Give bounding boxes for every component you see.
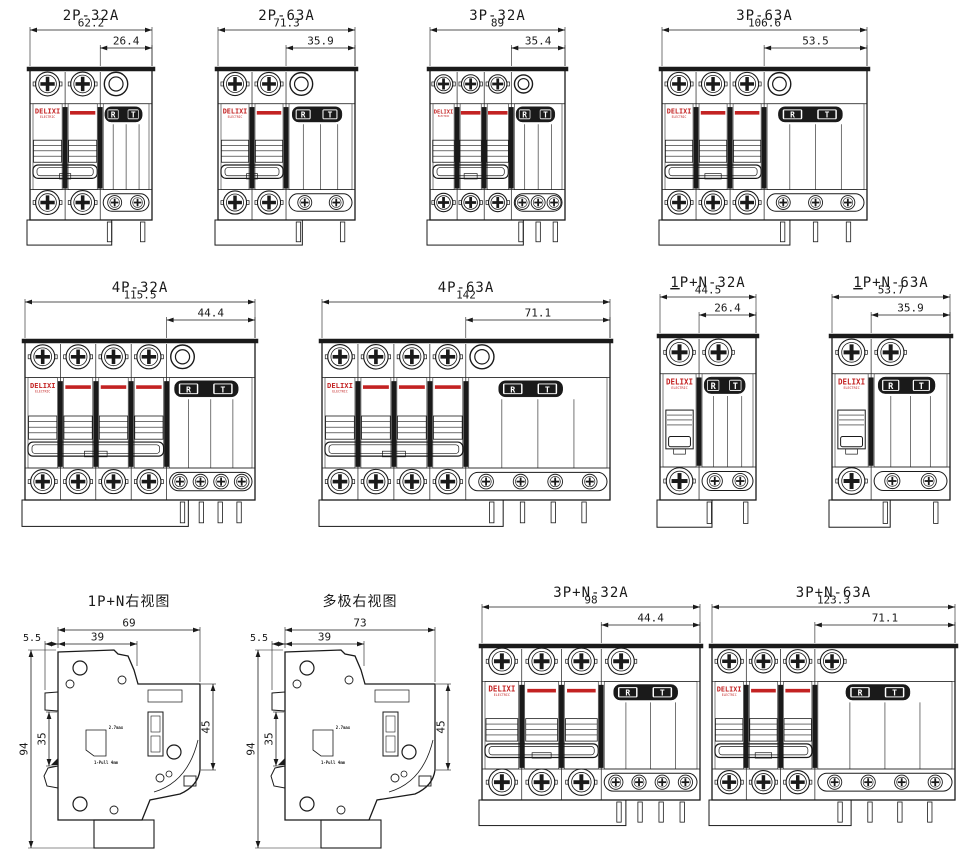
dimension-label: 106.6 — [748, 17, 781, 30]
brand-logo-sub: ELECTRIC — [722, 693, 737, 697]
reset-button-label: R — [186, 384, 191, 394]
brand-logo-sub: ELECTRIC — [494, 693, 510, 697]
diagram-1pn-32a: 1P+N-32A44.526.4DELIXIELECTRICRT — [657, 275, 759, 527]
test-button-label: T — [733, 382, 738, 392]
dimension-label: 71.3 — [273, 17, 300, 30]
dimension-label: 73 — [353, 617, 366, 630]
reset-button-label: R — [111, 111, 116, 120]
diagram-title: 1P+N右视图 — [88, 594, 171, 610]
brand-logo-sub: ELECTRIC — [671, 386, 687, 390]
test-button-label: T — [220, 384, 225, 394]
dimension-label: 53.7 — [878, 284, 905, 297]
dimension-label: 35.9 — [307, 35, 334, 48]
dimension-label: 53.5 — [802, 35, 829, 48]
test-button-label: T — [892, 689, 897, 698]
diagram-3pn-63a: 3P+N-63A123.371.1DELIXIELECTRICRT — [709, 585, 958, 826]
dimension-label: 45 — [435, 720, 448, 733]
brand-logo-sub: ELECTRIC — [40, 115, 55, 119]
dimension-label: 39 — [318, 631, 331, 644]
test-button-label: T — [825, 111, 830, 120]
reset-button-label: R — [711, 382, 717, 392]
dimension-label: 44.4 — [198, 307, 225, 320]
drawing-sheet: 2P-32A62.226.4DELIXIELECTRICRT2P-63A71.3… — [0, 0, 967, 863]
dimension-label: 26.4 — [714, 302, 741, 315]
diagram-1pn-63a: 1P+N-63A53.735.9DELIXIELECTRICRT — [829, 275, 953, 527]
dimension-label: 115.5 — [123, 289, 156, 302]
dimension-label: 39 — [91, 631, 104, 644]
dimension-label: 94 — [245, 742, 258, 756]
dimension-label: 35.4 — [525, 35, 552, 48]
dimension-label: 26.4 — [113, 35, 140, 48]
brand-logo: DELIXI — [488, 685, 515, 694]
brand-logo-sub: ELECTRIC — [843, 386, 859, 390]
diagram-3p-32a: 3P-32A8935.4DELIXIELECTRICRT — [427, 8, 568, 245]
dimension-label: 142 — [456, 289, 476, 302]
diagram-3pn-32a: 3P+N-32A9844.4DELIXIELECTRICRT — [479, 585, 703, 826]
dimension-label: 98 — [584, 594, 597, 607]
brand-logo: DELIXI — [838, 378, 865, 387]
reset-button-label: R — [790, 111, 795, 120]
diagram-2p-63a: 2P-63A71.335.9DELIXIELECTRICRT — [215, 8, 358, 245]
dimension-label: 35.9 — [897, 302, 924, 315]
diagram-side-1pn: 1P+N右视图69395.59435452.7max1-Pull 4mm — [18, 594, 217, 848]
reset-button-label: R — [888, 382, 894, 392]
dimension-label: 35 — [263, 732, 276, 745]
dimension-label: 45 — [200, 720, 213, 733]
side-note: 1-Pull 4mm — [94, 760, 119, 765]
dimension-label: 44.5 — [695, 284, 722, 297]
brand-logo-sub: ELECTRIC — [438, 115, 450, 118]
reset-button-label: R — [510, 384, 515, 394]
dimension-label: 5.5 — [23, 633, 41, 644]
dimension-label: 44.4 — [637, 612, 664, 625]
dimension-label: 62.2 — [78, 17, 105, 30]
test-button-label: T — [131, 111, 136, 120]
side-note: 2.7max — [336, 725, 351, 730]
test-button-label: T — [660, 689, 665, 698]
side-note: 2.7max — [109, 725, 124, 730]
side-note: 1-Pull 4mm — [321, 760, 346, 765]
diagram-4p-32a: 4P-32A115.544.4DELIXIELECTRICRT — [22, 280, 258, 526]
reset-button-label: R — [301, 111, 306, 120]
reset-button-label: R — [625, 689, 630, 698]
diagram-2p-32a: 2P-32A62.226.4DELIXIELECTRICRT — [27, 8, 155, 245]
brand-logo-sub: ELECTRIC — [35, 389, 50, 393]
reset-button-label: R — [858, 689, 863, 698]
brand-logo: DELIXI — [666, 378, 693, 387]
dimension-label: 123.3 — [817, 594, 850, 607]
brand-logo-sub: ELECTRIC — [228, 115, 243, 119]
dimension-label: 69 — [122, 617, 135, 630]
diagram-side-multi: 多极右视图73395.59435452.7max1-Pull 4mm — [245, 593, 452, 848]
dimension-label: 5.5 — [250, 633, 268, 644]
diagram-4p-63a: 4P-63A14271.1DELIXIELECTRICRT — [319, 280, 613, 526]
dimension-label: 89 — [491, 17, 504, 30]
brand-logo-sub: ELECTRIC — [672, 115, 687, 119]
dimension-label: 71.1 — [872, 612, 899, 625]
dimension-label: 94 — [18, 742, 31, 756]
dimension-label: 35 — [36, 732, 49, 745]
test-button-label: T — [919, 382, 924, 392]
test-button-label: T — [545, 384, 550, 394]
test-button-label: T — [543, 111, 548, 120]
drawings-canvas: 2P-32A62.226.4DELIXIELECTRICRT2P-63A71.3… — [0, 0, 967, 863]
reset-button-label: R — [522, 111, 527, 120]
dimension-label: 71.1 — [525, 307, 552, 320]
brand-logo-sub: ELECTRIC — [332, 389, 348, 393]
diagram-3p-63a: 3P-63A106.653.5DELIXIELECTRICRT — [659, 8, 870, 245]
test-button-label: T — [328, 111, 333, 120]
diagram-title: 多极右视图 — [323, 593, 398, 610]
